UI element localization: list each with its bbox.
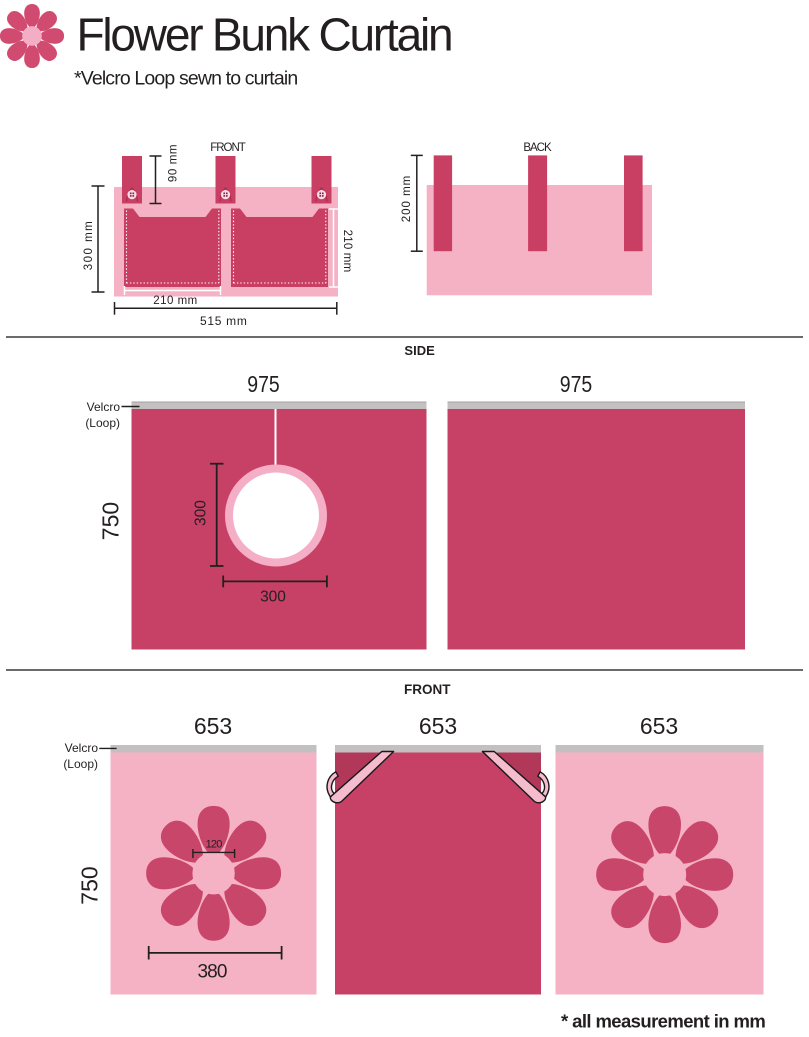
svg-text:380: 380	[197, 962, 226, 983]
svg-text:653: 653	[419, 713, 457, 739]
svg-text:210 mm: 210 mm	[341, 230, 353, 273]
svg-text:200 mm: 200 mm	[401, 175, 413, 223]
svg-text:300 mm: 300 mm	[83, 220, 95, 271]
svg-text:FRONT: FRONT	[210, 142, 246, 154]
svg-text:BACK: BACK	[523, 142, 552, 154]
svg-text:Flower Bunk Curtain: Flower Bunk Curtain	[77, 9, 452, 61]
svg-text:975: 975	[560, 371, 593, 397]
svg-text:653: 653	[194, 713, 232, 739]
svg-text:(Loop): (Loop)	[85, 416, 120, 430]
svg-text:515 mm: 515 mm	[200, 314, 248, 328]
svg-text:Velcro: Velcro	[87, 400, 121, 414]
svg-text:(Loop): (Loop)	[63, 757, 98, 771]
svg-text:653: 653	[640, 713, 678, 739]
svg-text:975: 975	[247, 371, 280, 397]
svg-text:Velcro: Velcro	[65, 741, 99, 755]
svg-text:210 mm: 210 mm	[153, 295, 198, 307]
svg-text:* all measurement in mm: * all measurement in mm	[561, 1011, 765, 1032]
svg-text:750: 750	[98, 502, 124, 540]
svg-text:90 mm: 90 mm	[168, 144, 180, 182]
svg-text:FRONT: FRONT	[404, 682, 451, 697]
svg-text:300: 300	[260, 589, 286, 606]
svg-text:120: 120	[206, 839, 223, 851]
svg-text:*Velcro Loop sewn to curtain: *Velcro Loop sewn to curtain	[74, 68, 297, 90]
svg-text:SIDE: SIDE	[404, 343, 435, 358]
svg-text:750: 750	[77, 866, 103, 904]
svg-text:300: 300	[193, 500, 210, 526]
